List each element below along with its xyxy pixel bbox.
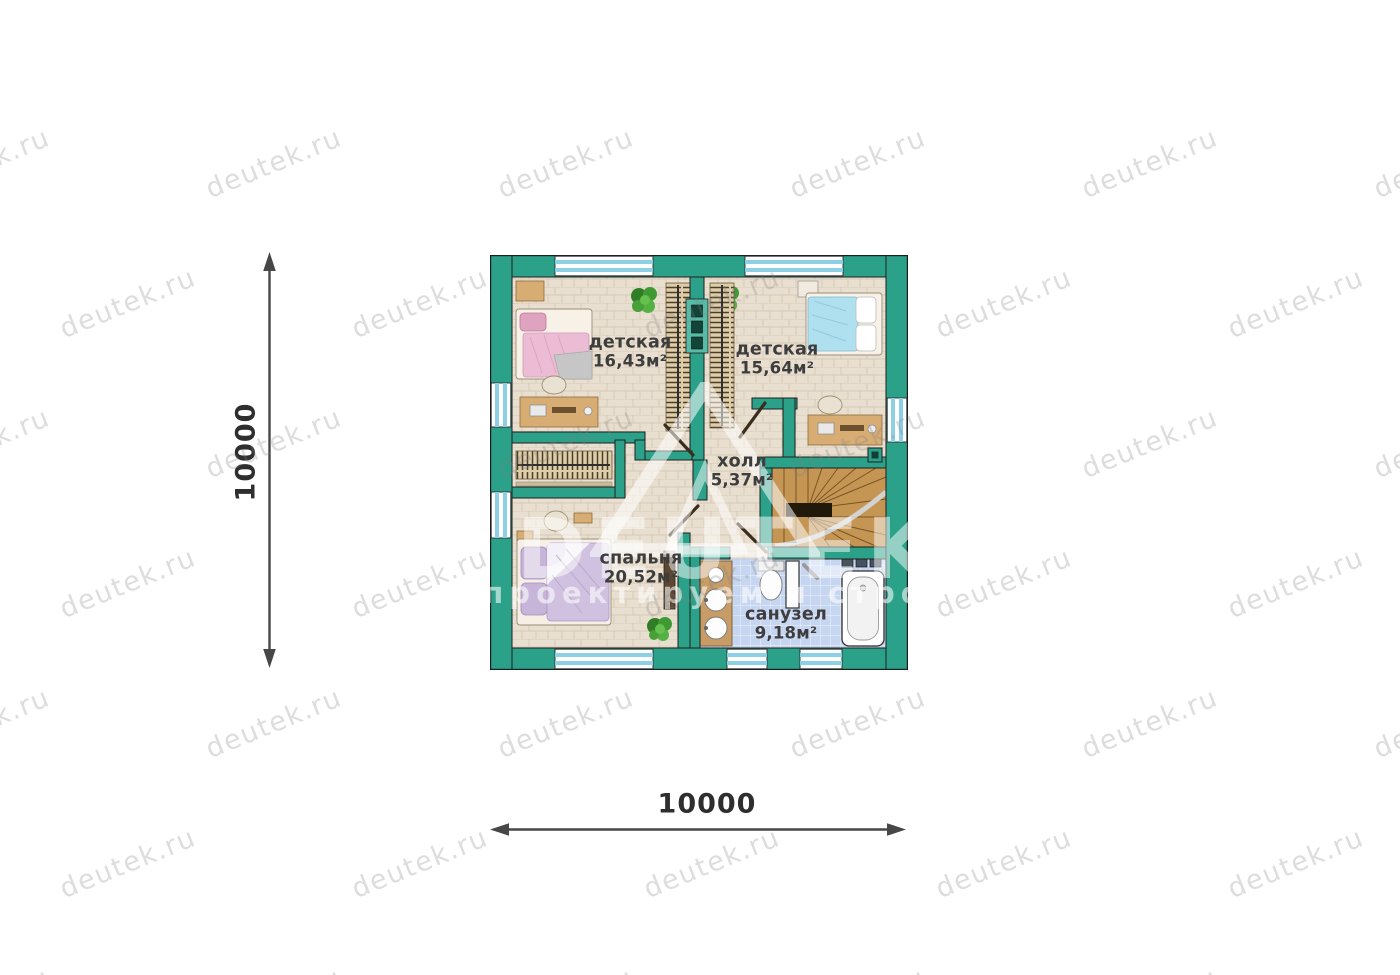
wardrobe-icon bbox=[516, 451, 612, 479]
watermark-tile-text: deutek.ru bbox=[1223, 822, 1368, 905]
watermark-tile-text: deutek.ru bbox=[201, 122, 346, 205]
watermark-tile-text: deutek.ru bbox=[1369, 122, 1400, 205]
watermark-tile-text: deutek.ru bbox=[55, 262, 200, 345]
floor-plan-page: 10000 10000 DEUTEK проектируем и строим … bbox=[0, 0, 1400, 975]
window bbox=[491, 492, 511, 538]
watermark-tile-text: deutek.ru bbox=[785, 962, 930, 975]
horizontal-dimension-line bbox=[490, 823, 906, 836]
shelf-icon bbox=[516, 482, 612, 486]
window bbox=[555, 649, 653, 669]
window bbox=[800, 649, 842, 669]
room-area: 15,64м² bbox=[736, 360, 819, 378]
watermark-tile-text: deutek.ru bbox=[201, 682, 346, 765]
sink-icon bbox=[705, 589, 727, 611]
watermark-tile-text: deutek.ru bbox=[1077, 402, 1222, 485]
dresser-icon bbox=[516, 281, 544, 301]
chair-icon bbox=[542, 376, 566, 394]
vertical-dimension-line bbox=[263, 252, 276, 668]
room-label-bedroom: спальня 20,52м² bbox=[600, 549, 683, 586]
watermark-tile-text: deutek.ru bbox=[201, 962, 346, 975]
watermark-tile-text: deutek.ru bbox=[1369, 682, 1400, 765]
watermark-tile-text: deutek.ru bbox=[0, 682, 55, 765]
watermark-tile-text: deutek.ru bbox=[931, 262, 1076, 345]
horizontal-dimension-label: 10000 bbox=[658, 789, 757, 820]
room-name: детская bbox=[589, 333, 672, 352]
room-label-hall: холл 5,37м² bbox=[711, 452, 774, 489]
wall-niche bbox=[686, 299, 708, 353]
watermark-tile-text: deutek.ru bbox=[493, 122, 638, 205]
window bbox=[491, 383, 511, 427]
wall-block bbox=[868, 448, 882, 462]
watermark-tile-text: deutek.ru bbox=[639, 822, 784, 905]
watermark-tile-text: deutek.ru bbox=[493, 962, 638, 975]
vertical-dimension-label: 10000 bbox=[231, 403, 262, 502]
room-name: холл bbox=[711, 452, 774, 471]
watermark-tile-text: deutek.ru bbox=[931, 542, 1076, 625]
watermark-tile-text: deutek.ru bbox=[493, 682, 638, 765]
stairs-icon bbox=[772, 468, 886, 547]
window bbox=[555, 256, 653, 276]
watermark-tile-text: deutek.ru bbox=[1077, 962, 1222, 975]
bed-icon bbox=[516, 309, 592, 379]
watermark-tile-text: deutek.ru bbox=[0, 962, 55, 975]
watermark-tile-text: deutek.ru bbox=[1223, 262, 1368, 345]
floor-plan-drawing bbox=[490, 255, 908, 670]
watermark-tile-text: deutek.ru bbox=[1077, 122, 1222, 205]
wardrobe-icon bbox=[710, 283, 734, 428]
watermark-tile-text: deutek.ru bbox=[785, 122, 930, 205]
watermark-tile-text: deutek.ru bbox=[0, 402, 55, 485]
watermark-tile-text: deutek.ru bbox=[201, 402, 346, 485]
room-name: спальня bbox=[600, 549, 683, 568]
room-area: 5,37м² bbox=[711, 472, 774, 490]
armchair-icon bbox=[544, 511, 568, 531]
toilet-icon bbox=[758, 561, 784, 600]
watermark-tile-text: deutek.ru bbox=[1369, 962, 1400, 975]
watermark-tile-text: deutek.ru bbox=[55, 822, 200, 905]
watermark-tile-text: deutek.ru bbox=[0, 122, 55, 205]
bed-icon bbox=[517, 539, 611, 625]
window bbox=[887, 398, 907, 442]
watermark-tile-text: deutek.ru bbox=[785, 682, 930, 765]
plant-icon bbox=[647, 617, 672, 641]
watermark-tile-text: deutek.ru bbox=[347, 822, 492, 905]
room-area: 16,43м² bbox=[589, 353, 672, 371]
window bbox=[745, 256, 843, 276]
room-area: 20,52м² bbox=[600, 569, 683, 587]
partition-icon bbox=[786, 561, 799, 608]
room-name: детская bbox=[736, 340, 819, 359]
sink-icon bbox=[709, 568, 724, 583]
watermark-tile-text: deutek.ru bbox=[347, 542, 492, 625]
watermark-tile-text: deutek.ru bbox=[55, 542, 200, 625]
plant-icon bbox=[631, 287, 657, 313]
room-label-kids-room-2: детская 15,64м² bbox=[736, 340, 819, 377]
room-label-bathroom: санузел 9,18м² bbox=[745, 605, 827, 642]
sink-icon bbox=[705, 617, 727, 639]
watermark-tile-text: deutek.ru bbox=[931, 822, 1076, 905]
side-table-icon bbox=[574, 513, 592, 523]
chair-icon bbox=[818, 396, 842, 414]
bathtub-icon bbox=[842, 571, 884, 646]
room-area: 9,18м² bbox=[745, 625, 827, 643]
watermark-tile-text: deutek.ru bbox=[347, 262, 492, 345]
watermark-tile-text: deutek.ru bbox=[1223, 542, 1368, 625]
window bbox=[727, 649, 767, 669]
room-label-kids-room-1: детская 16,43м² bbox=[589, 333, 672, 370]
watermark-tile-text: deutek.ru bbox=[1077, 682, 1222, 765]
room-name: санузел bbox=[745, 605, 827, 624]
watermark-tile-text: deutek.ru bbox=[1369, 402, 1400, 485]
